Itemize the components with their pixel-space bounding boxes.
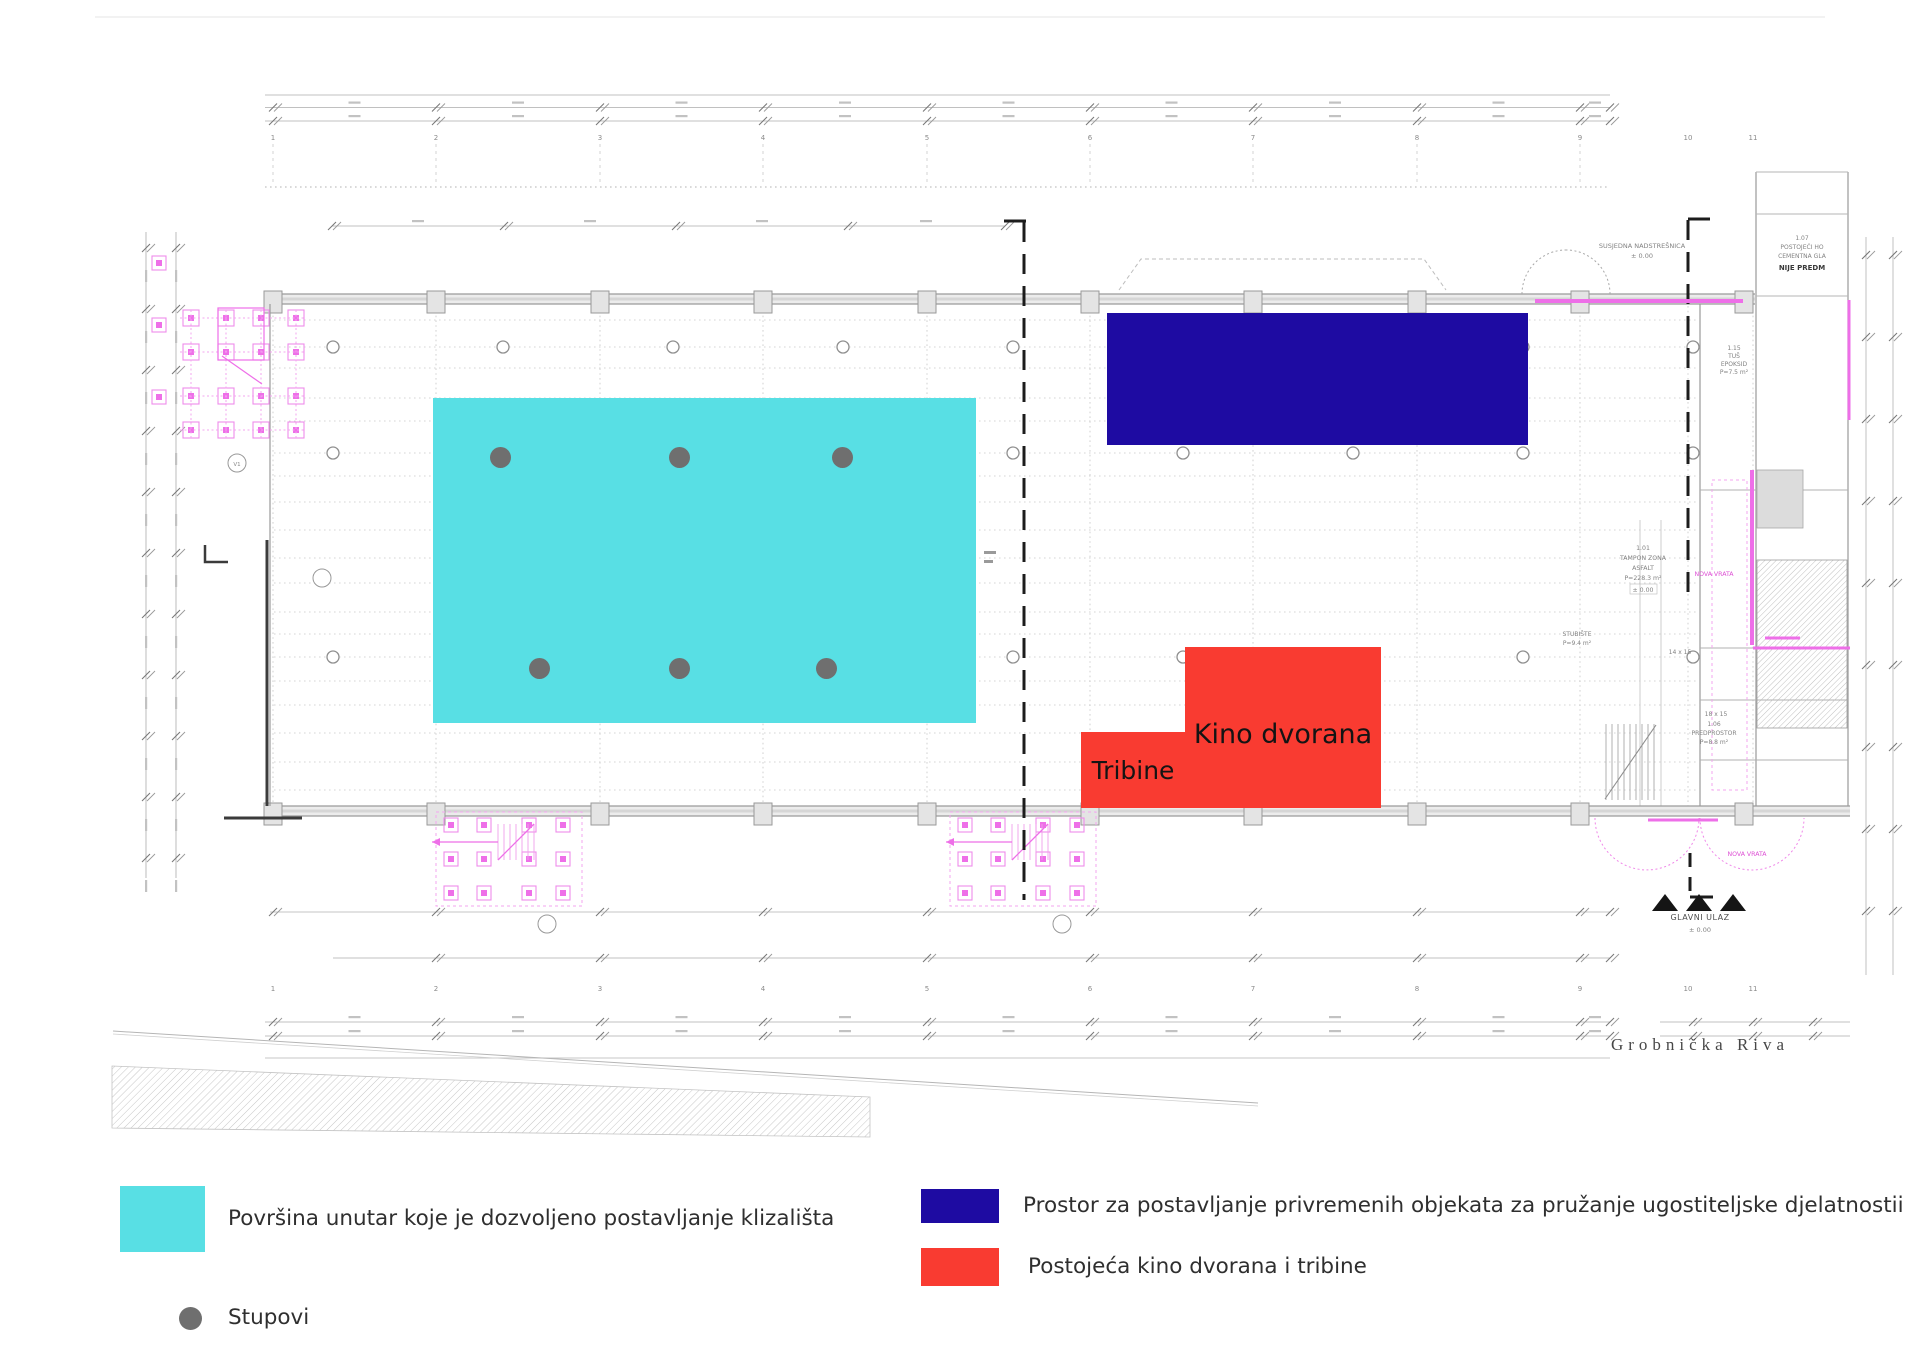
svg-text:3: 3 bbox=[598, 985, 602, 993]
svg-text:11: 11 bbox=[1749, 134, 1758, 142]
rink-allowed-area bbox=[433, 398, 976, 723]
label-tampon: 1.01 bbox=[1636, 545, 1650, 552]
svg-text:NIJE PREDM: NIJE PREDM bbox=[1779, 264, 1825, 272]
svg-text:V1: V1 bbox=[233, 462, 240, 468]
label-dim14: 14 x 15 bbox=[1669, 649, 1692, 656]
street-label: Grobnička Riva bbox=[1611, 1035, 1789, 1054]
cinema-hall-area: Kino dvorana bbox=[1185, 647, 1381, 808]
svg-text:4: 4 bbox=[761, 134, 766, 142]
svg-text:3: 3 bbox=[598, 134, 602, 142]
legend-swatch-rink bbox=[120, 1186, 205, 1252]
column-dot bbox=[529, 658, 550, 679]
svg-text:8: 8 bbox=[1415, 985, 1419, 993]
label-nova-vrata-1: NOVA VRATA bbox=[1695, 571, 1735, 578]
label-hodnik: 1.07 bbox=[1795, 235, 1809, 242]
svg-text:TUŠ: TUŠ bbox=[1727, 353, 1740, 360]
svg-text:7: 7 bbox=[1251, 134, 1255, 142]
hatched-waterfront-band bbox=[112, 1066, 870, 1137]
svg-text:ASFALT: ASFALT bbox=[1632, 565, 1654, 572]
legend-dot-stupovi bbox=[179, 1307, 202, 1330]
svg-text:10: 10 bbox=[1684, 985, 1693, 993]
svg-text:9: 9 bbox=[1578, 985, 1582, 993]
legend-label-stupovi: Stupovi bbox=[228, 1296, 309, 1340]
label-stubiste: STUBIŠTE bbox=[1562, 631, 1591, 638]
hospitality-objects-area bbox=[1107, 313, 1528, 445]
cinema-hall-label: Kino dvorana bbox=[1185, 647, 1381, 750]
svg-text:P=228.3 m²: P=228.3 m² bbox=[1624, 575, 1662, 582]
svg-text:± 0.00: ± 0.00 bbox=[1689, 926, 1711, 934]
floor-plan-page: 11223344556677889910101111 V1 SUSJEDNA N… bbox=[0, 0, 1920, 1357]
legend-swatch-hospitality bbox=[921, 1189, 999, 1223]
entrance-arrows bbox=[1652, 894, 1746, 911]
svg-text:TAMPON ZONA: TAMPON ZONA bbox=[1619, 555, 1667, 562]
label-nova-vrata-2: NOVA VRATA bbox=[1728, 851, 1768, 858]
svg-text:8: 8 bbox=[1415, 134, 1419, 142]
svg-text:6: 6 bbox=[1088, 134, 1093, 142]
svg-text:9: 9 bbox=[1578, 134, 1582, 142]
svg-text:P=9.4 m²: P=9.4 m² bbox=[1563, 640, 1592, 647]
svg-text:6: 6 bbox=[1088, 985, 1093, 993]
svg-text:1: 1 bbox=[271, 134, 275, 142]
svg-text:11: 11 bbox=[1749, 985, 1758, 993]
label-tus: 1.15 bbox=[1727, 345, 1741, 352]
stands-label: Tribine bbox=[1081, 732, 1185, 785]
svg-text:P=7.5 m²: P=7.5 m² bbox=[1720, 369, 1749, 376]
column-dot bbox=[832, 447, 853, 468]
svg-text:7: 7 bbox=[1251, 985, 1255, 993]
svg-text:1.06: 1.06 bbox=[1707, 721, 1721, 728]
svg-text:10: 10 bbox=[1684, 134, 1693, 142]
column-dot bbox=[669, 447, 690, 468]
column-dot bbox=[816, 658, 837, 679]
label-main-entrance: GLAVNI ULAZ bbox=[1670, 913, 1729, 922]
svg-text:CEMENTNA GLA: CEMENTNA GLA bbox=[1778, 253, 1827, 260]
legend-label-hospitality: Prostor za postavljanje privremenih obje… bbox=[1023, 1189, 1904, 1223]
svg-text:POSTOJEĆI HO: POSTOJEĆI HO bbox=[1780, 244, 1823, 251]
stands-area: Tribine bbox=[1081, 732, 1185, 808]
svg-text:± 0.00: ± 0.00 bbox=[1631, 252, 1653, 260]
shoreline bbox=[112, 1031, 1258, 1137]
svg-text:EPOKSID: EPOKSID bbox=[1721, 361, 1748, 368]
svg-text:1: 1 bbox=[271, 985, 275, 993]
legend-label-cinema: Postojeća kino dvorana i tribine bbox=[1028, 1248, 1367, 1286]
svg-text:5: 5 bbox=[925, 134, 929, 142]
svg-text:4: 4 bbox=[761, 985, 766, 993]
column-dot bbox=[669, 658, 690, 679]
label-susjedna: SUSJEDNA NADSTREŠNICA bbox=[1599, 241, 1686, 250]
label-predprostor: PREDPROSTOR bbox=[1691, 730, 1736, 737]
column-dot bbox=[490, 447, 511, 468]
legend-swatch-cinema bbox=[921, 1248, 999, 1286]
svg-text:2: 2 bbox=[434, 985, 438, 993]
svg-text:2: 2 bbox=[434, 134, 438, 142]
legend-label-rink: Površina unutar koje je dozvoljeno posta… bbox=[228, 1186, 834, 1252]
svg-text:P=8.8 m²: P=8.8 m² bbox=[1700, 739, 1729, 746]
svg-text:± 0.00: ± 0.00 bbox=[1633, 587, 1654, 594]
svg-text:5: 5 bbox=[925, 985, 929, 993]
label-dim18: 18 x 15 bbox=[1705, 711, 1728, 718]
